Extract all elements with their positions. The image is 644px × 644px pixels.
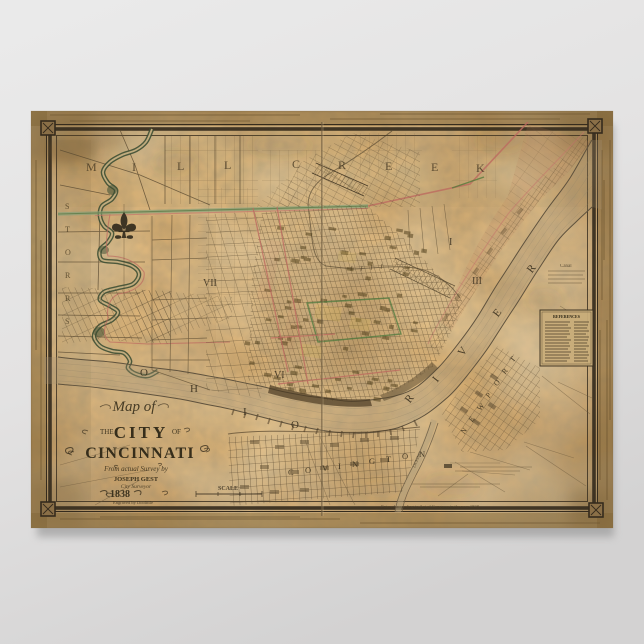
svg-text:JOSEPH GEST: JOSEPH GEST	[114, 476, 159, 483]
svg-text:O: O	[65, 248, 71, 257]
svg-text:I: I	[338, 461, 341, 471]
svg-text:REFERENCES: REFERENCES	[553, 314, 581, 319]
svg-text:R: R	[65, 271, 71, 280]
svg-text:H: H	[190, 383, 198, 395]
svg-text:O: O	[305, 465, 311, 475]
svg-text:1838: 1838	[110, 489, 130, 500]
svg-text:S: S	[65, 202, 69, 211]
svg-text:S: S	[65, 317, 69, 326]
svg-text:R: R	[338, 158, 346, 172]
svg-text:THE: THE	[100, 428, 114, 436]
svg-text:T: T	[65, 225, 70, 234]
svg-text:From actual Survey by: From actual Survey by	[103, 465, 169, 473]
svg-text:I: I	[132, 160, 136, 174]
svg-text:V: V	[322, 463, 329, 473]
svg-text:CINCINNATI: CINCINNATI	[85, 445, 195, 462]
svg-text:I: I	[449, 237, 452, 248]
svg-text:E: E	[431, 160, 438, 174]
svg-text:M: M	[86, 160, 97, 174]
svg-text:O: O	[291, 419, 299, 431]
svg-text:Canal: Canal	[560, 264, 572, 269]
svg-text:K: K	[476, 161, 485, 175]
svg-text:C: C	[288, 467, 294, 477]
svg-text:L: L	[177, 159, 184, 173]
svg-text:O: O	[140, 367, 148, 379]
svg-text:III: III	[472, 276, 482, 287]
svg-text:SCALE: SCALE	[218, 486, 238, 492]
svg-text:C: C	[292, 157, 300, 171]
svg-text:E: E	[385, 159, 392, 173]
svg-text:T: T	[386, 454, 392, 464]
svg-text:O: O	[402, 451, 408, 461]
svg-text:VI: VI	[274, 370, 285, 381]
svg-text:OF: OF	[172, 428, 181, 436]
svg-text:VII: VII	[203, 278, 217, 289]
svg-text:R: R	[65, 294, 71, 303]
svg-text:G: G	[369, 456, 375, 466]
svg-text:N: N	[419, 449, 425, 459]
svg-text:I: I	[243, 406, 247, 418]
svg-text:Entered according to Act of Co: Entered according to Act of Congress in …	[381, 504, 480, 509]
svg-text:N: N	[352, 459, 358, 469]
svg-text:CITY: CITY	[114, 423, 169, 442]
svg-text:Map of: Map of	[112, 399, 158, 415]
svg-text:L: L	[224, 158, 231, 172]
svg-text:Engraved by Doolittle: Engraved by Doolittle	[113, 500, 153, 505]
